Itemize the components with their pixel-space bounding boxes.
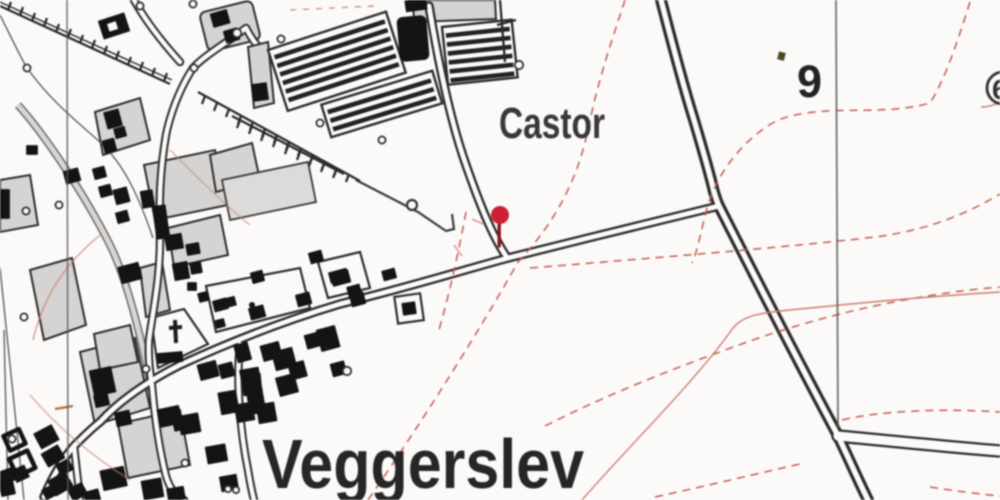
svg-text:6: 6 (992, 74, 1000, 105)
svg-text:9: 9 (797, 56, 822, 107)
svg-text:Veggerslev: Veggerslev (262, 425, 584, 500)
svg-text:Castor: Castor (499, 99, 605, 148)
